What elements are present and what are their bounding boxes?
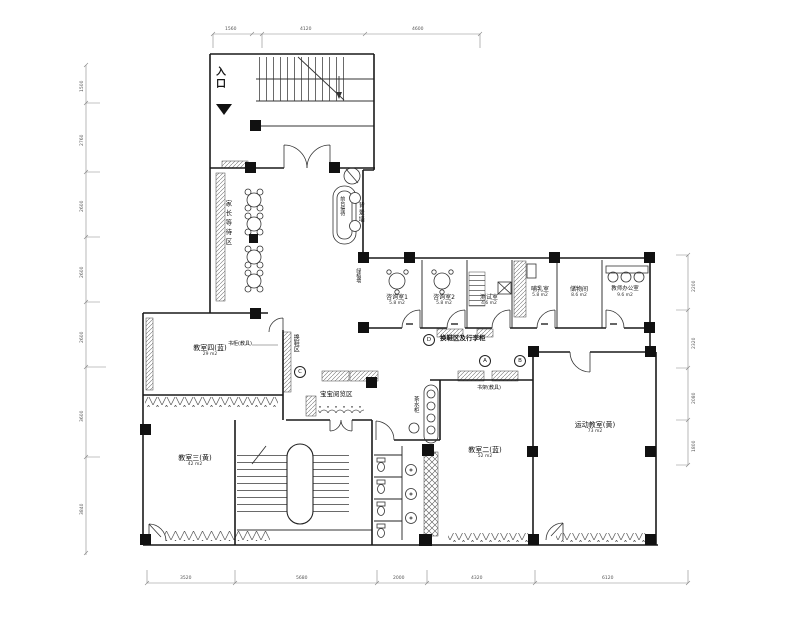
dimension-lines: [84, 32, 690, 585]
dim-bottom-3: 4320: [471, 576, 482, 581]
dim-bottom-0: 3520: [180, 576, 191, 581]
dim-bottom-2: 2000: [393, 576, 404, 581]
columns: [140, 104, 656, 546]
room-label-test: 测试室4.6 m2: [471, 295, 507, 307]
dim-left-3: 2600: [80, 267, 85, 278]
shoe-luggage-label: 换鞋区及行李柜: [440, 335, 486, 342]
baby-reading-label: 宝宝阅览区: [320, 391, 353, 398]
dim-right-1: 2320: [692, 338, 697, 349]
marker-d: D: [423, 334, 435, 346]
room-label-classroom4: 教室四(蓝)29 m2: [180, 345, 240, 358]
marker-a: A: [479, 355, 491, 367]
dim-left-1: 2760: [80, 135, 85, 146]
dim-bottom-1: 5680: [296, 576, 307, 581]
plant-wall-label: 绿植墙: [355, 268, 360, 283]
dim-right-0: 2200: [692, 281, 697, 292]
room-label-classroom2: 教室二(蓝)52 m2: [455, 447, 515, 460]
dim-top-0: 1560: [225, 27, 236, 32]
room-label-consult2: 咨询室25.8 m2: [424, 295, 464, 307]
room-label-consult1: 咨询室15.8 m2: [377, 295, 417, 307]
dim-left-4: 2600: [80, 332, 85, 343]
dim-top-2: 4600: [412, 27, 423, 32]
entrance-label: 入口: [213, 66, 224, 90]
bookshelf-label: 书架(教具): [477, 386, 501, 391]
dim-left-2: 2600: [80, 201, 85, 212]
room-label-storage: 储物间8.6 m2: [561, 287, 597, 299]
dim-right-2: 2080: [692, 393, 697, 404]
dim-bottom-4: 6120: [602, 576, 613, 581]
dim-top-1: 4120: [300, 27, 311, 32]
background-wall-label: 背景墙: [357, 202, 363, 223]
tea-cabinet-label: 茶水柜: [412, 396, 418, 413]
shoe-area-label: 换鞋区: [292, 334, 298, 352]
room-label-classroom3: 教室三(黄)42 m2: [160, 455, 230, 468]
floorplan-canvas: 入口 家长等待区 前台接待 背景墙 绿植墙 换鞋区 茶水柜 书柜(教具) 换鞋区…: [0, 0, 800, 618]
room-label-teacher-office: 教师办公室9.6 m2: [601, 287, 649, 298]
marker-b: B: [514, 355, 526, 367]
dim-left-6: 3840: [80, 504, 85, 515]
dim-left-0: 1500: [80, 81, 85, 92]
front-desk-label: 前台接待: [339, 196, 344, 216]
room-label-nursing: 哺乳室5.8 m2: [522, 287, 558, 299]
waiting-area-label: 家长等待区: [224, 200, 231, 248]
floorplan-linework: [0, 0, 800, 618]
room-label-sport: 运动教室(黄)73 m2: [560, 422, 630, 435]
dim-left-5: 3600: [80, 411, 85, 422]
marker-c: C: [294, 366, 306, 378]
dim-right-3: 1800: [692, 441, 697, 452]
